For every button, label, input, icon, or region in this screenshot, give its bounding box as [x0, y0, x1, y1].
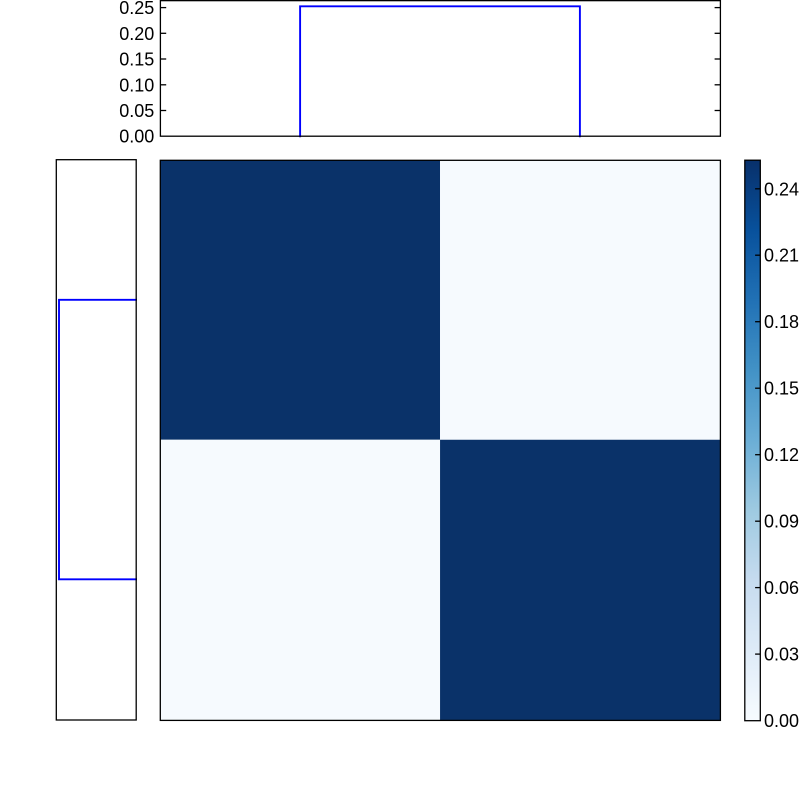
svg-text:0.05: 0.05 — [119, 101, 154, 121]
svg-text:0.21: 0.21 — [764, 246, 799, 266]
svg-text:0.12: 0.12 — [764, 445, 799, 465]
svg-text:0.09: 0.09 — [764, 512, 799, 532]
svg-text:0.03: 0.03 — [764, 645, 799, 665]
svg-text:0.15: 0.15 — [764, 379, 799, 399]
svg-text:0.25: 0.25 — [119, 0, 154, 18]
svg-text:0.10: 0.10 — [119, 75, 154, 95]
svg-text:0.15: 0.15 — [119, 49, 154, 69]
svg-text:0.00: 0.00 — [119, 127, 154, 147]
svg-text:0.24: 0.24 — [764, 179, 799, 199]
svg-text:0.00: 0.00 — [764, 711, 799, 731]
svg-text:0.06: 0.06 — [764, 578, 799, 598]
svg-text:0.20: 0.20 — [119, 24, 154, 44]
svg-text:0.18: 0.18 — [764, 312, 799, 332]
